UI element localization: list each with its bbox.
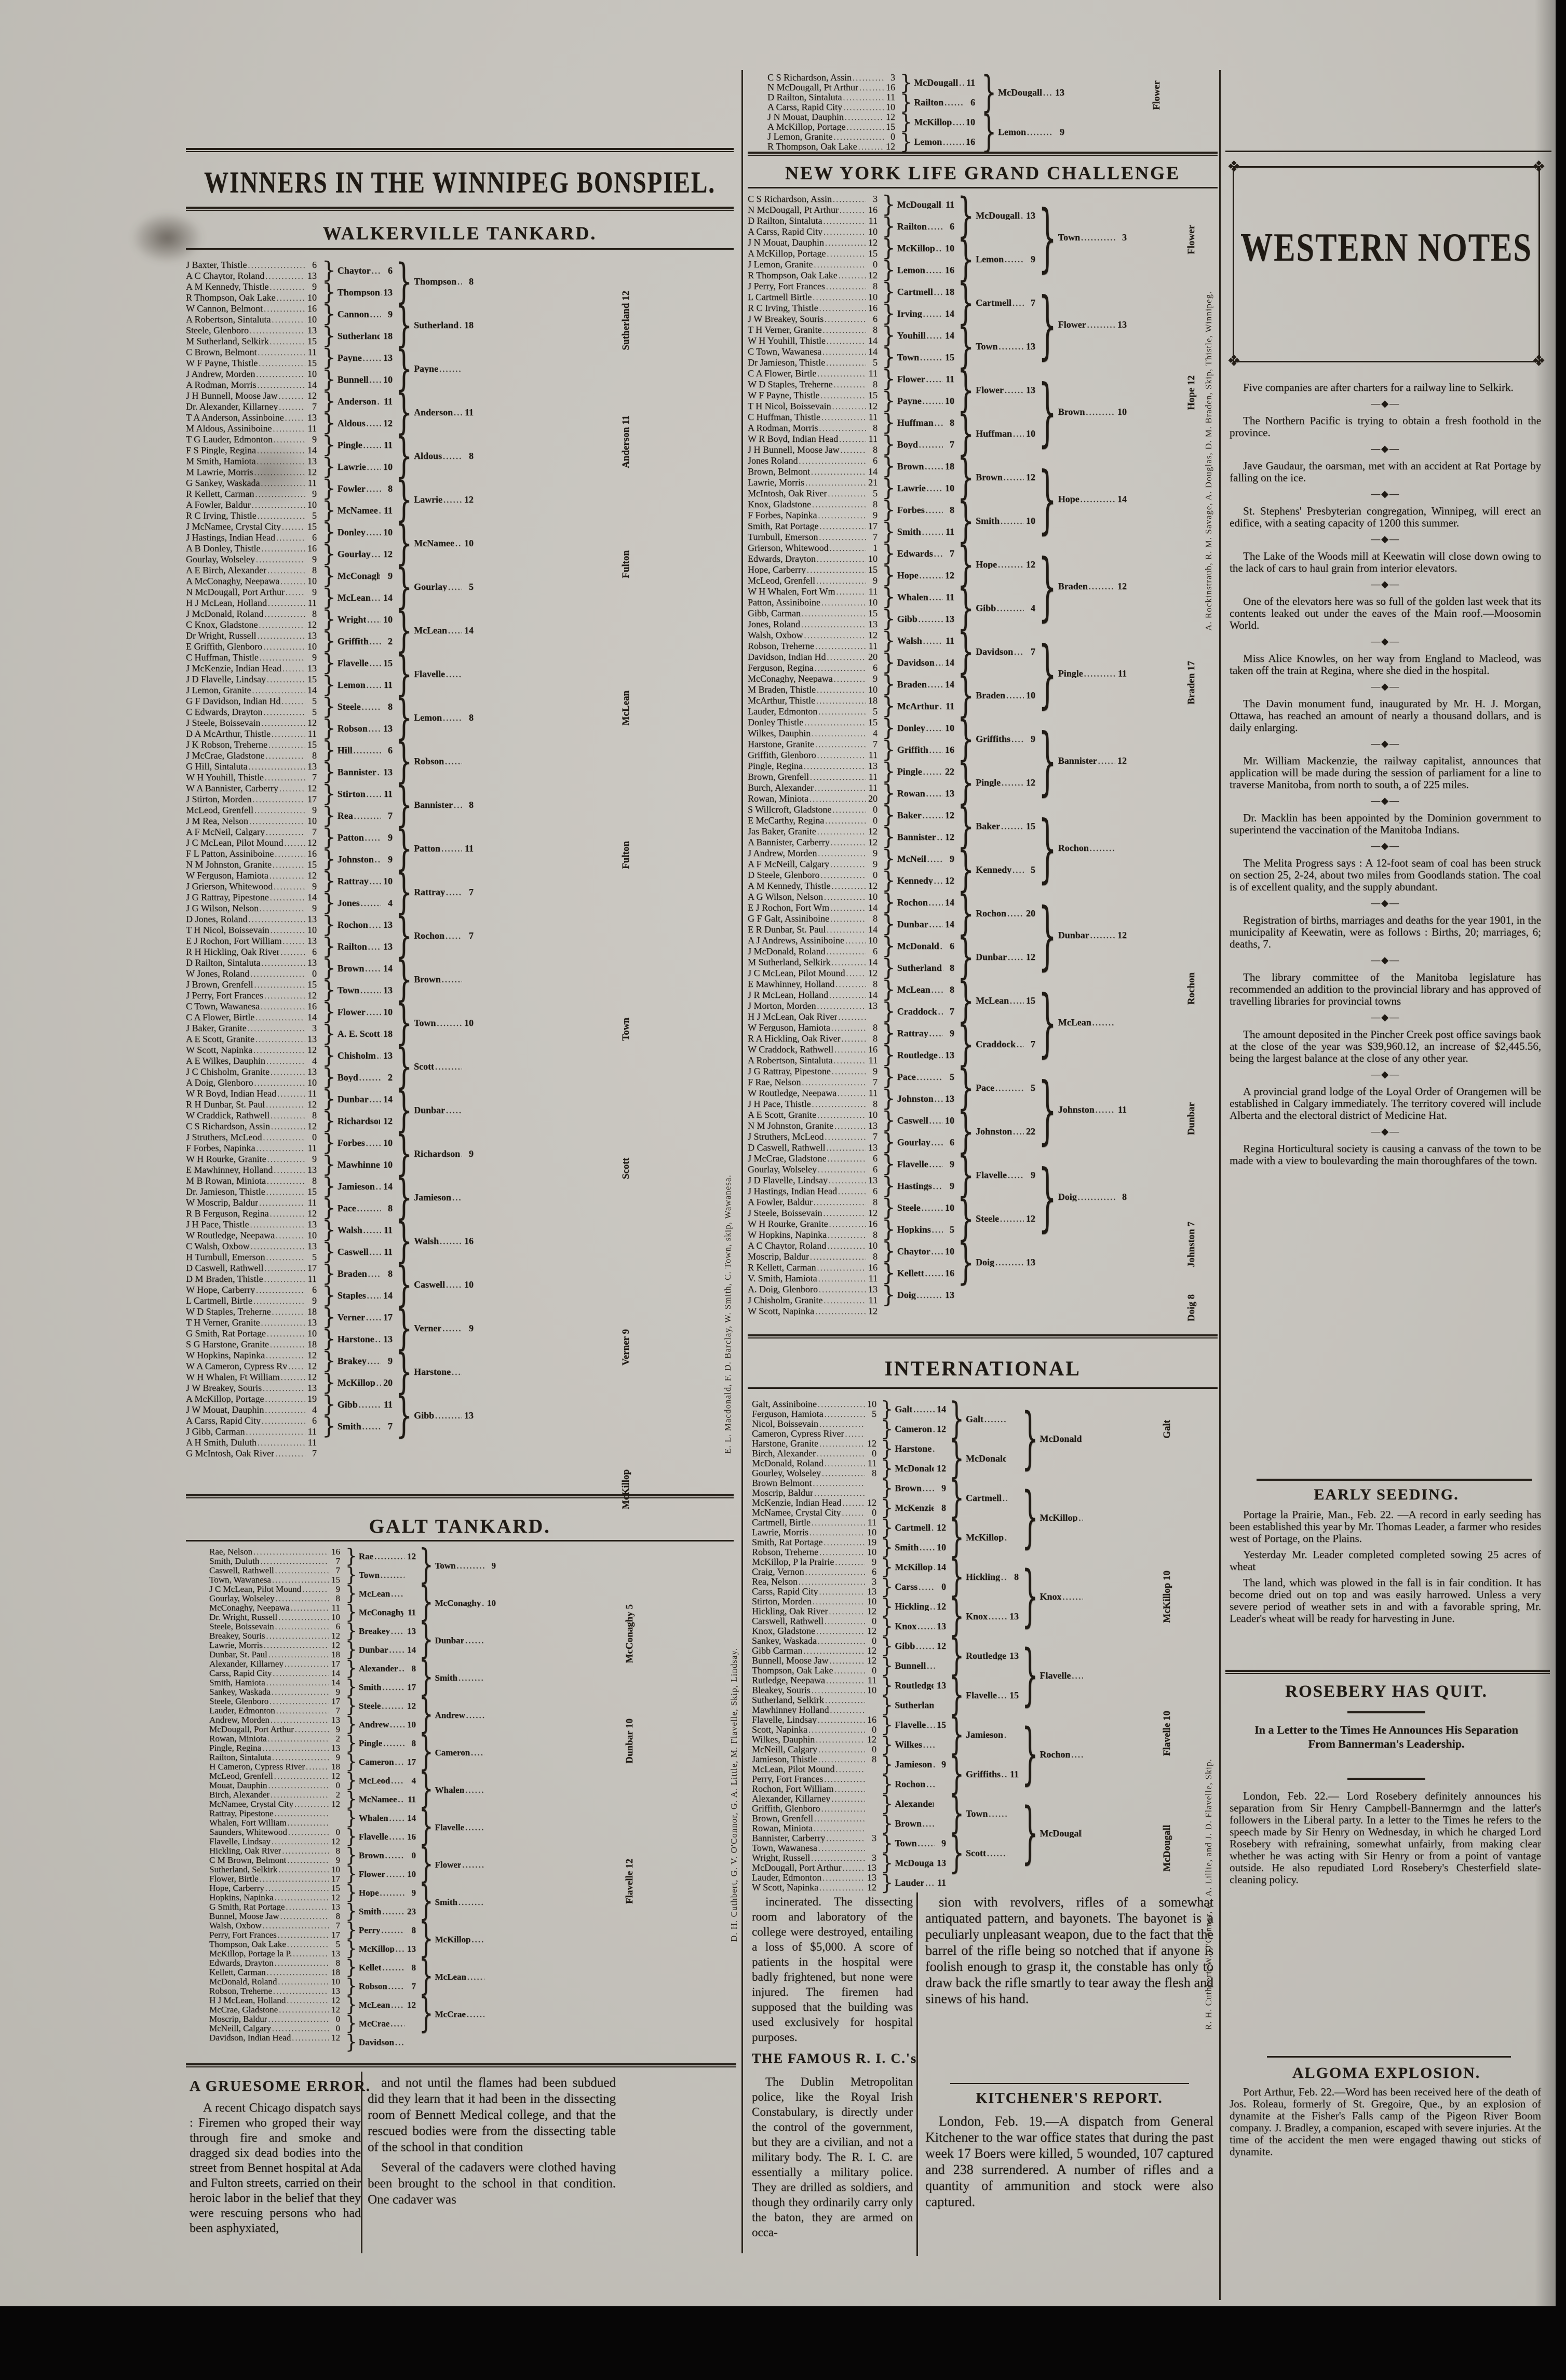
bracket-entrant-line: McKenzie, Indian Head12 xyxy=(752,1498,876,1508)
paragraph: Regina Horticultural society is causing … xyxy=(1230,1143,1541,1167)
bracket-entrant-line: D Railton, Sintaluta11 xyxy=(748,215,878,226)
algoma-article: Port Arthur, Feb. 22.—Word has been rece… xyxy=(1230,2086,1541,2162)
bracket-entrant-line: J H Bunnell, Moose Jaw12 xyxy=(186,390,317,401)
paragraph: and not until the flames had been subdue… xyxy=(368,2075,616,2155)
bracket-entrant-line: W Ferguson, Hamiota8 xyxy=(748,1022,878,1033)
bracket-entrant-line: Lauder, Edmonton5 xyxy=(748,706,878,717)
algoma-heading: ALGOMA EXPLOSION. xyxy=(1225,2064,1547,2082)
bracket-entrant-line: A Carss, Rapid City10 xyxy=(767,102,895,112)
bracket-winner-label: }Payne13 xyxy=(322,347,393,369)
rotated-winner-label: Flavelle 10 xyxy=(1162,1711,1172,1756)
bracket-winner-label: }Lemon16 xyxy=(882,259,954,281)
bracket-entrant-line: Jones Roland6 xyxy=(748,455,878,466)
bracket-winner-label: }McKillop10 xyxy=(900,112,975,132)
bracket-winner-label: }McLean xyxy=(345,1585,416,1603)
bracket-entrant-line: Dr Jamieson, Thistle5 xyxy=(748,357,878,368)
bracket-entrant-line: N McDougall, Port Arthur9 xyxy=(186,587,317,598)
bracket-brace-icon: } xyxy=(345,2033,357,2052)
bracket-entrant-line: D Steele, Glenboro0 xyxy=(748,870,878,881)
bracket-entrant-line: J McDonald, Roland6 xyxy=(748,946,878,957)
rosebery-article: London, Feb. 22.— Lord Rosebery definite… xyxy=(1230,1790,1541,1890)
bracket-brace-icon: } xyxy=(1038,200,1057,274)
bracket-brace-icon: } xyxy=(1022,1563,1038,1630)
paragraph: St. Stephens' Presbyterian congregation,… xyxy=(1230,505,1541,529)
bracket-brace-icon: } xyxy=(1038,375,1057,449)
bracket-entrant-line: J H Bunnell, Moose Jaw8 xyxy=(748,444,878,455)
bracket-entrant-line: McNeill, Calgary0 xyxy=(209,2024,340,2033)
bracket-entrant-line: J W Mouat, Dauphin4 xyxy=(186,1404,317,1415)
bracket-winner-label: }Davidson xyxy=(345,2033,416,2052)
bracket-entrant-line: J W Breakey, Souris6 xyxy=(748,314,878,324)
bracket-winner-label: }Town3 xyxy=(1038,194,1127,281)
bracket-winner-label: }Flower10 xyxy=(345,1865,416,1884)
bracket-winner-label: }Cameron12 xyxy=(881,1419,946,1439)
bracket-entrant-line: Cartmell, Birtle11 xyxy=(752,1518,876,1527)
bracket-entrant-line: J G Rattray, Pipestone9 xyxy=(748,1066,878,1077)
bracket-winner-label: }Pingle8 xyxy=(345,1734,416,1753)
bracket-winner-label: }Gibb11 xyxy=(322,1394,393,1415)
bracket-winner-label: }Braden8 xyxy=(322,1263,393,1284)
bracket-winner-label: }Town xyxy=(345,1566,416,1585)
bracket-entrant-line: Rowan, Miniota20 xyxy=(748,793,878,804)
rule xyxy=(186,248,734,250)
bracket-winner-label: }McDougall11 xyxy=(882,194,954,215)
bracket-winner-label: }Rochon xyxy=(1022,1715,1095,1794)
bracket-entrant-line: A E Scott, Granite13 xyxy=(186,1034,317,1045)
bracket-entrant-line: McCrae, Gladstone12 xyxy=(209,2005,340,2014)
bracket-entrant-line: Grierson, Whitewood1 xyxy=(748,543,878,553)
bracket-entrant-line: J C McLean, Pilot Mound12 xyxy=(748,968,878,979)
bracket-entrant-line: Harstone, Granite12 xyxy=(752,1439,876,1449)
bracket-winner-label: }Cameron17 xyxy=(345,1753,416,1772)
bracket-winner-label: }Lawrie10 xyxy=(322,456,393,478)
bracket-winner-label: }McDougall11 xyxy=(900,73,975,92)
rotated-winner-label: McKillop xyxy=(621,1469,631,1509)
bracket-entrant-line: A McKillop, Portage15 xyxy=(767,122,895,132)
bracket-winner-label: }Andrew10 xyxy=(345,1715,416,1734)
bracket-entrant-line: D Jones, Roland13 xyxy=(186,914,317,925)
bracket-winner-label: }Bannister13 xyxy=(322,761,393,783)
scan-black-right xyxy=(1556,0,1566,2380)
bracket-winner-label: }Walsh11 xyxy=(882,630,954,652)
bracket-brace-icon: } xyxy=(1038,637,1057,710)
bracket-winner-label: }McNeil9 xyxy=(882,848,954,870)
bracket-winner-label: }Forbes10 xyxy=(322,1132,393,1154)
section-divider-ornament: —◆— xyxy=(1230,795,1541,807)
bracket-brace-icon: } xyxy=(1038,724,1057,797)
bracket-winner-label: }Dunbar14 xyxy=(322,1088,393,1110)
column-rule xyxy=(916,1892,918,2256)
bracket-entrant-line: A McKillop, Portage19 xyxy=(186,1394,317,1404)
rotated-winner-label: McConaghy 5 xyxy=(625,1604,634,1663)
bracket-winner-label: }Rattray10 xyxy=(322,870,393,892)
bracket-winner-label: }Steele8 xyxy=(322,696,393,718)
gruesome-article: A recent Chicago dispatch says : Firemen… xyxy=(190,2101,361,2240)
bracket-winner-label: }Chisholm13 xyxy=(322,1045,393,1066)
bracket-winner-label: }Dunbar12 xyxy=(1038,891,1127,979)
corner-ornament-icon: ❖ xyxy=(1227,159,1241,175)
paragraph: A recent Chicago dispatch says : Firemen… xyxy=(190,2101,361,2236)
bracket-entrant-line: J N Mouat, Dauphin12 xyxy=(767,112,895,122)
bracket-winner-label: }McKenzie8 xyxy=(881,1498,946,1518)
bracket-winner-label: }McDonald6 xyxy=(882,935,954,957)
rule xyxy=(1257,1479,1532,1481)
bracket-entrant-line: J Struthers, McLeod7 xyxy=(748,1131,878,1142)
bracket-entrant-line: Pingle, Regina13 xyxy=(748,761,878,772)
newspaper-page: WINNERS IN THE WINNIPEG BONSPIEL. WALKER… xyxy=(0,0,1566,2380)
bracket-entrant-line: R A Hickling, Oak River8 xyxy=(748,1033,878,1044)
bracket-winner-label: }Hopkins5 xyxy=(882,1219,954,1240)
section-divider-ornament: —◆— xyxy=(1230,635,1541,647)
bracket-winner-label: }Pingle11 xyxy=(1038,630,1127,717)
bracket-round4-column: }McDonald}McKillop}Knox}Flavelle}Rochon}… xyxy=(1022,1399,1095,1873)
bracket-brace-icon: } xyxy=(957,1239,974,1286)
paragraph: Miss Alice Knowles, on her way from Engl… xyxy=(1230,653,1541,677)
bracket-entrant-line: E J Rochon, Fort Wm14 xyxy=(748,902,878,913)
rotated-winner-label: Doig 8 xyxy=(1186,1294,1196,1321)
bracket-entrant-line: A M Kennedy, Thistle9 xyxy=(186,281,317,292)
bracket-winner-label: }Jamieson14 xyxy=(322,1175,393,1197)
bracket-winner-label: }Pingle22 xyxy=(882,761,954,782)
bracket-entrant-line: C Town, Wawanesa14 xyxy=(748,346,878,357)
bracket-entrant-line: A Rodman, Morris8 xyxy=(748,423,878,434)
bracket-entrant-line: C Brown, Belmont11 xyxy=(186,347,317,358)
bracket-entrant-line: J Steele, Boissevain12 xyxy=(748,1208,878,1219)
bracket-entrants-column: Galt, Assiniboine10Ferguson, Hamiota5Nic… xyxy=(752,1399,876,1892)
bracket-winner-label: }Donley10 xyxy=(322,521,393,543)
bracket-entrant-line: J Chisholm, Granite11 xyxy=(748,1295,878,1306)
bracket-entrant-line: D M Braden, Thistle11 xyxy=(186,1274,317,1284)
bracket-winner-label: }McNamee11 xyxy=(322,499,393,521)
bracket-winner-label: }Railton6 xyxy=(900,92,975,112)
bracket-entrant-line: A Fowler, Baldur8 xyxy=(748,1197,878,1208)
bracket-brace-icon: } xyxy=(396,1392,412,1439)
bracket-winner-label: }Anderson11 xyxy=(322,390,393,412)
bracket-winner-label: }Hope14 xyxy=(1038,455,1127,543)
bracket-entrant-line: T H Nicol, Boissevain12 xyxy=(748,401,878,412)
bracket-entrant-line: J H Pace, Thistle8 xyxy=(748,1099,878,1110)
bracket-brace-icon: } xyxy=(1038,811,1057,885)
bracket-winner-label: }Pace5 xyxy=(882,1066,954,1088)
bracket-entrant-line: Bunnel, Moose Jaw8 xyxy=(209,1912,340,1921)
bracket-entrant-line: J Lemon, Granite0 xyxy=(748,259,878,270)
bracket-entrant-line: Davidson, Indian Hd20 xyxy=(748,652,878,662)
bracket-entrant-line: W F Payne, Thistle15 xyxy=(186,358,317,369)
bracket-entrant-line: A E Birch, Alexander8 xyxy=(186,565,317,576)
double-rule xyxy=(186,1494,734,1498)
bracket-winner-label: }Brown9 xyxy=(881,1478,946,1498)
bracket-round3-column: }McDougall13}Lemon9 xyxy=(981,73,1064,152)
bracket-entrant-line: J Baker, Granite3 xyxy=(186,1023,317,1034)
bracket-entrant-line: C A Flower, Birtle14 xyxy=(186,1012,317,1023)
bracket-entrant-line: Ferguson, Regina6 xyxy=(748,662,878,673)
bracket-entrant-line: W Hopkins, Napinka12 xyxy=(186,1350,317,1361)
bracket-entrant-line: R H Dunbar, St. Paul12 xyxy=(186,1099,317,1110)
bracket-winner-label: }Lauder11 xyxy=(881,1873,946,1892)
bracket-winner-label: }Caswell11 xyxy=(322,1241,393,1263)
bracket-entrant-line: S G Harstone, Granite18 xyxy=(186,1339,317,1350)
bracket-entrant-line: Moscrip, Baldur0 xyxy=(209,2014,340,2024)
bracket-winner-label: }Smith10 xyxy=(881,1537,946,1557)
fragment-bracket: C S Richardson, Assin3N McDougall, Pt Ar… xyxy=(767,73,1214,156)
bracket-entrant-line: Moscrip, Baldur xyxy=(752,1488,876,1498)
bracket-entrant-line: D Railton, Sintaluta11 xyxy=(767,92,895,102)
bracket-winner-label: }Hope9 xyxy=(345,1884,416,1902)
bracket-winner-label: }McLean8 xyxy=(882,979,954,1000)
bracket-entrant-line: Cameron, Cypress River xyxy=(752,1429,876,1439)
bracket-entrant-line: Mawhinney Holland xyxy=(752,1705,876,1715)
bracket-winner-label: }Donley10 xyxy=(882,717,954,739)
bracket-entrant-line: Dr. Wright, Russell10 xyxy=(209,1613,340,1622)
bracket-entrant-line: Perry, Fort Frances xyxy=(752,1774,876,1784)
bracket-winner-label: }Thompson13 xyxy=(322,281,393,303)
bracket-winner-label: }Hickling12 xyxy=(881,1597,946,1616)
bracket-winner-label: }Knox13 xyxy=(881,1616,946,1636)
bracket-entrant-line: Moscrip, Baldur8 xyxy=(748,1251,878,1262)
bracket-winner-label: }McDougall xyxy=(1022,1794,1095,1873)
bracket-winner-label: }Gibb12 xyxy=(881,1636,946,1656)
bracket-entrant-line: E Griffith, Glenboro10 xyxy=(186,641,317,652)
bracket-entrant-line: C Knox, Gladstone12 xyxy=(186,619,317,630)
bracket-brace-icon: } xyxy=(1038,549,1057,623)
bracket-entrant-line: J Steele, Boissevain12 xyxy=(186,718,317,728)
bracket-brace-icon: } xyxy=(981,111,996,153)
bracket-winner-label: }Boyd7 xyxy=(882,434,954,455)
bracket-entrant-line: E Mawhinney, Holland13 xyxy=(186,1165,317,1175)
bracket-entrant-line: Gourley, Wolseley8 xyxy=(752,1468,876,1478)
bracket-winner-label: }Perry8 xyxy=(345,1921,416,1940)
bracket-entrant-line: W Scott, Napinka12 xyxy=(748,1306,878,1317)
bracket-winner-label: }Flavelle xyxy=(1022,1636,1095,1715)
bracket-entrant-line: J Grierson, Whitewood9 xyxy=(186,881,317,892)
bracket-winner-label: }Carss0 xyxy=(881,1577,946,1597)
bracket-entrant-line: McIntosh, Oak River5 xyxy=(748,488,878,499)
bracket-winner-label: }Caswell10 xyxy=(882,1110,954,1131)
bracket-winner-label: }Dunbar14 xyxy=(882,913,954,935)
bracket-entrant-line: G F Davidson, Indian Hd5 xyxy=(186,696,317,707)
bracket-winner-label: }Staples14 xyxy=(322,1284,393,1306)
bracket-entrant-line: Carss, Rapid City14 xyxy=(209,1669,340,1678)
bracket-entrant-line: W H Youhill, Thistle14 xyxy=(748,335,878,346)
bracket-winner-label: }Hope12 xyxy=(882,564,954,586)
bracket-winner-label: }Gibb13 xyxy=(882,608,954,630)
bracket-entrant-line: J Andrew, Morden9 xyxy=(748,848,878,859)
bracket-entrant-line: W D Staples, Treherne8 xyxy=(748,379,878,390)
bracket-entrant-line: Wilkes, Dauphin4 xyxy=(748,728,878,739)
bracket-winner-label: }Irving14 xyxy=(882,303,954,324)
bracket-round3-column: }Town9}McConaghy10}Dunbar}Smith}Andrew}C… xyxy=(419,1547,496,2033)
bracket-entrant-line: A Carss, Rapid City10 xyxy=(748,226,878,237)
bracket-winner-label: }Wright10 xyxy=(322,608,393,630)
paragraph: incinerated. The dissecting room and lab… xyxy=(752,1894,913,2045)
bracket-entrant-line: Breakey, Souris12 xyxy=(209,1631,340,1641)
bracket-entrant-line: Stirton, Morden10 xyxy=(752,1597,876,1606)
rotated-winner-label: McDougall xyxy=(1162,1825,1172,1872)
bracket-winner-label: }Rowan13 xyxy=(882,782,954,804)
bracket-winner-label: }Harstone xyxy=(881,1439,946,1458)
paragraph: Port Arthur, Feb. 22.—Word has been rece… xyxy=(1230,2086,1541,2158)
galt-heading: GALT TANKARD. xyxy=(186,1515,734,1538)
bracket-entrant-line: McNamee, Crystal City0 xyxy=(752,1508,876,1518)
paragraph: Several of the cadavers were clothed hav… xyxy=(368,2159,616,2208)
bracket-winner-label: }Johnston11 xyxy=(1038,1066,1127,1153)
bracket-entrant-line: C Huffman, Thistle11 xyxy=(748,412,878,423)
bracket-entrant-line: J Hastings, Indian Head6 xyxy=(748,1186,878,1197)
column-rule xyxy=(741,70,743,2253)
bracket-entrant-line: Steele, Boissevain6 xyxy=(209,1622,340,1631)
bracket-winner-label: }Steele12 xyxy=(345,1697,416,1715)
bracket-winner-label: }McConaghy11 xyxy=(345,1603,416,1622)
column-rule xyxy=(1219,70,1221,2300)
bracket-entrant-line: J R McLean, Holland14 xyxy=(748,990,878,1000)
bracket-entrant-line: G Smith, Rat Portage10 xyxy=(186,1328,317,1339)
bracket-entrant-line: Nicol, Boissevain xyxy=(752,1419,876,1429)
bracket-winner-label: }Robson13 xyxy=(322,718,393,739)
bracket-winner-label: }Lawrie10 xyxy=(882,477,954,499)
section-divider-ornament: —◆— xyxy=(1230,578,1541,590)
bracket-winner-label: }Cartmell12 xyxy=(881,1518,946,1537)
bracket-round2-column: }Chaytor6}Thompson13}Cannon9}Sutherland1… xyxy=(322,260,393,1437)
bracket-winner-label: }Smith11 xyxy=(882,521,954,543)
bracket-entrant-line: Rattray, Pipestone xyxy=(209,1809,340,1818)
bracket-round2-column: }Galt14}Cameron12}Harstone}McDonald12}Br… xyxy=(881,1399,946,1892)
bracket-entrant-line: W H Whalen, Ft William12 xyxy=(186,1372,317,1383)
nylife-bracket: C S Richardson, Assin3N McDougall, Pt Ar… xyxy=(748,194,1215,1320)
rotated-winner-label: Flower xyxy=(1186,225,1196,254)
bracket-winner-label: }Sutherland18 xyxy=(322,325,393,347)
bracket-entrant-line: Gourlay, Wolseley6 xyxy=(748,1164,878,1175)
bracket-entrant-line: M Braden, Thistle10 xyxy=(748,684,878,695)
bracket-entrant-line: J H Pace, Thistle13 xyxy=(186,1219,317,1230)
bracket-entrant-line: Sutherland, Selkirk xyxy=(752,1695,876,1705)
bracket-entrant-line: Smith, Duluth7 xyxy=(209,1557,340,1566)
bracket-winner-label: }Aldous12 xyxy=(322,412,393,434)
bracket-entrant-line: J Perry, Fort Frances12 xyxy=(186,990,317,1001)
bracket-winner-label: }Town13 xyxy=(322,979,393,1001)
bracket-entrant-line: Gourlay, Wolseley9 xyxy=(186,554,317,565)
bracket-winner-label: }Huffman8 xyxy=(882,412,954,434)
bracket-entrant-line: J C McLean, Pilot Mound9 xyxy=(209,1585,340,1594)
bracket-winner-label: }Harstone13 xyxy=(322,1328,393,1350)
bracket-winner-label: }Forbes8 xyxy=(882,499,954,521)
bracket-entrant-line: McConaghy, Neepawa11 xyxy=(209,1603,340,1613)
bracket-entrant-line: Brown, Grenfell11 xyxy=(748,772,878,782)
bracket-round2-column: }McDougall11}Railton6}McKillop10}Lemon16 xyxy=(900,73,975,152)
bracket-entrant-line: Griffith, Glenboro xyxy=(752,1804,876,1814)
section-divider-ornament: —◆— xyxy=(1230,738,1541,750)
bracket-entrant-line: D A McArthur, Thistle11 xyxy=(186,728,317,739)
bracket-entrant-line: Wilkes, Dauphin12 xyxy=(752,1735,876,1745)
rule xyxy=(1267,2056,1511,2058)
bracket-entrant-line: A Carss, Rapid City6 xyxy=(186,1415,317,1426)
nylife-heading: NEW YORK LIFE GRAND CHALLENGE xyxy=(748,162,1218,184)
bracket-winner-label: }Bannister12 xyxy=(1038,717,1127,804)
bracket-winner-label: }Jones4 xyxy=(322,892,393,914)
bracket-entrant-line: Thompson, Oak Lake5 xyxy=(209,1940,340,1949)
double-rule xyxy=(748,152,1218,156)
paragraph: Dr. Macklin has been appointed by the Do… xyxy=(1230,812,1541,836)
bracket-winner-label: }McCrae xyxy=(345,2014,416,2033)
kitchener-heading: KITCHENER'S REPORT. xyxy=(925,2090,1213,2107)
bracket-brace-icon: } xyxy=(1022,1484,1038,1551)
bracket-entrant-line: H J McLean, Holland12 xyxy=(209,1996,340,2005)
paragraph: Five companies are after charters for a … xyxy=(1230,382,1541,394)
bracket-entrant-line: A McConaghy, Neepawa10 xyxy=(186,576,317,587)
double-rule xyxy=(186,207,734,211)
bracket-winner-label: }McDougall13 xyxy=(881,1853,946,1873)
bracket-entrant-line: M Sutherland, Selkirk15 xyxy=(186,336,317,347)
bracket-entrant-line: R C Irving, Thistle16 xyxy=(748,303,878,314)
bracket-entrant-line: Caswell, Rathwell7 xyxy=(209,1566,340,1575)
bracket-entrant-line: W H Rourke, Granite16 xyxy=(748,1219,878,1229)
bracket-entrant-line: W H Rourke, Granite9 xyxy=(186,1154,317,1165)
bracket-entrant-line: A J Andrews, Assiniboine10 xyxy=(748,935,878,946)
bracket-winner-label: }Pingle11 xyxy=(322,434,393,456)
bracket-brace-icon: } xyxy=(1038,288,1057,361)
bracket-winner-label: }Sutherland xyxy=(881,1695,946,1715)
bracket-winner-label: }Brown18 xyxy=(882,455,954,477)
bracket-entrant-line: W H Youhill, Thistle7 xyxy=(186,772,317,783)
bracket-winner-label: }Flavelle15 xyxy=(322,652,393,674)
bracket-entrant-line: M Lawrie, Morris12 xyxy=(186,467,317,478)
galt-bracket: Rae, Nelson16Smith, Duluth7Caswell, Rath… xyxy=(209,1547,734,2046)
bracket-entrant-line: Griffith, Glenboro11 xyxy=(748,750,878,761)
bracket-entrant-line: J Morton, Morden13 xyxy=(748,1000,878,1011)
bracket-winner-label: }Flavelle15 xyxy=(881,1715,946,1735)
bracket-winner-label: }Chaytor6 xyxy=(322,260,393,281)
bracket-entrant-line: Turnbull, Emerson7 xyxy=(748,532,878,543)
bracket-entrant-line: Pingle, Regina13 xyxy=(209,1743,340,1753)
rosebery-heading: ROSEBERY HAS QUIT. xyxy=(1225,1682,1547,1701)
bracket-entrant-line: J Struthers, McLeod0 xyxy=(186,1132,317,1143)
bracket-entrant-line: J McDonald, Roland8 xyxy=(186,608,317,619)
bracket-winner-label: }Breakey13 xyxy=(345,1622,416,1641)
bracket-entrant-line: Sutherland, Selkirk10 xyxy=(209,1865,340,1874)
rink-caption: A. Rockinstraub, R. M. Savage, A. Dougla… xyxy=(1204,210,1214,631)
bracket-entrant-line: A G Wilson, Nelson10 xyxy=(748,891,878,902)
bracket-winner-label: }Jamieson9 xyxy=(881,1754,946,1774)
bracket-winner-label: }Brown xyxy=(881,1814,946,1833)
rosebery-deck: In a Letter to the Times He Announces Hi… xyxy=(1241,1723,1532,1751)
bracket-entrant-line: McArthur, Thistle18 xyxy=(748,695,878,706)
bracket-entrant-line: W Jones, Roland0 xyxy=(186,968,317,979)
bracket-entrant-line: Jas Baker, Granite12 xyxy=(748,826,878,837)
paragraph: The Dublin Metropolitan police, like the… xyxy=(752,2074,913,2240)
bracket-winner-label: }Brown0 xyxy=(345,1846,416,1865)
bracket-entrant-line: J G Rattray, Pipestone14 xyxy=(186,892,317,903)
bracket-winner-label: }Baker12 xyxy=(882,804,954,826)
paragraph: Jave Gaudaur, the oarsman, met with an a… xyxy=(1230,460,1541,484)
rink-caption: E. L. Macdonald, F. D. Barclay, W. Smith… xyxy=(723,857,733,1454)
bracket-entrant-line: R Thompson, Oak Lake12 xyxy=(767,142,895,152)
bracket-entrant-line: C Edwards, Drayton5 xyxy=(186,707,317,718)
bracket-entrant-line: J McCrae, Gladstone6 xyxy=(748,1153,878,1164)
bracket-entrant-line: M B Rowan, Miniota8 xyxy=(186,1175,317,1186)
western-notes-title: WESTERN NOTES xyxy=(1234,225,1538,271)
bracket-entrant-line: W Scott, Napinka12 xyxy=(186,1045,317,1056)
rotated-winner-label: Sutherland 12 xyxy=(621,291,631,350)
bracket-winner-label: }Payne10 xyxy=(882,390,954,412)
ric-continuation: sion with revolvers, rifles of a somewha… xyxy=(925,1894,1213,2011)
bracket-entrant-line: A F McNeil, Calgary7 xyxy=(186,827,317,837)
bracket-entrant-line: A F McNeill, Calgary9 xyxy=(748,859,878,870)
bracket-entrant-line: N McDougall, Pt Arthur16 xyxy=(748,205,878,215)
rotated-winner-label: Town xyxy=(621,1018,631,1041)
bracket-entrant-line: Scott, Napinka0 xyxy=(752,1725,876,1735)
gruesome-continuation: and not until the flames had been subdue… xyxy=(368,2075,616,2212)
bracket-entrant-line: Sankey, Waskada0 xyxy=(752,1636,876,1646)
bracket-entrant-line: Ferguson, Hamiota5 xyxy=(752,1409,876,1419)
